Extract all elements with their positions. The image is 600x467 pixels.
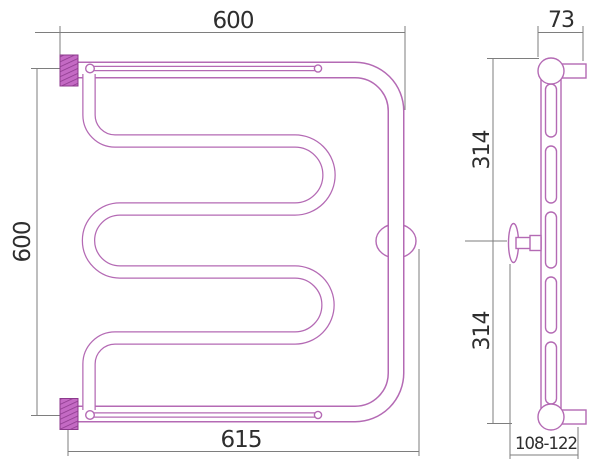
dim-top-depth: 73 bbox=[538, 8, 583, 61]
frame-pipe bbox=[78, 70, 396, 414]
dim-upper-height-label: 314 bbox=[470, 131, 495, 170]
dim-left-height-label: 600 bbox=[10, 221, 36, 262]
drawing-canvas: 600 600 615 73 314 314 108-122 bbox=[0, 0, 600, 467]
side-coil-segments bbox=[546, 84, 557, 404]
dim-lower-height-label: 314 bbox=[470, 312, 495, 351]
side-bracket bbox=[509, 224, 542, 263]
dim-top-depth-label: 73 bbox=[548, 8, 574, 33]
serpentine-coil-pipe bbox=[89, 74, 330, 410]
bar-end-cap bbox=[86, 64, 95, 73]
dim-top-width-label: 600 bbox=[213, 8, 254, 34]
dim-bottom-width: 615 bbox=[68, 249, 419, 456]
dim-left-height: 600 bbox=[10, 68, 60, 416]
bar-end-cap bbox=[86, 411, 95, 420]
dim-bottom-width-label: 615 bbox=[221, 427, 262, 453]
towel-rail-drawing: 600 600 615 73 314 314 108-122 bbox=[0, 0, 600, 467]
fitting-bottom-left bbox=[60, 399, 78, 430]
side-rail-end-top bbox=[538, 58, 564, 84]
dim-wall-distance-label: 108-122 bbox=[515, 434, 577, 453]
bar-end-cap bbox=[314, 65, 321, 72]
bracket-collar bbox=[530, 236, 541, 251]
side-view bbox=[509, 58, 587, 430]
fitting-top-left bbox=[60, 55, 78, 86]
bar-end-cap bbox=[314, 411, 321, 418]
side-rail-end-bottom bbox=[538, 404, 564, 430]
front-view bbox=[60, 55, 416, 430]
